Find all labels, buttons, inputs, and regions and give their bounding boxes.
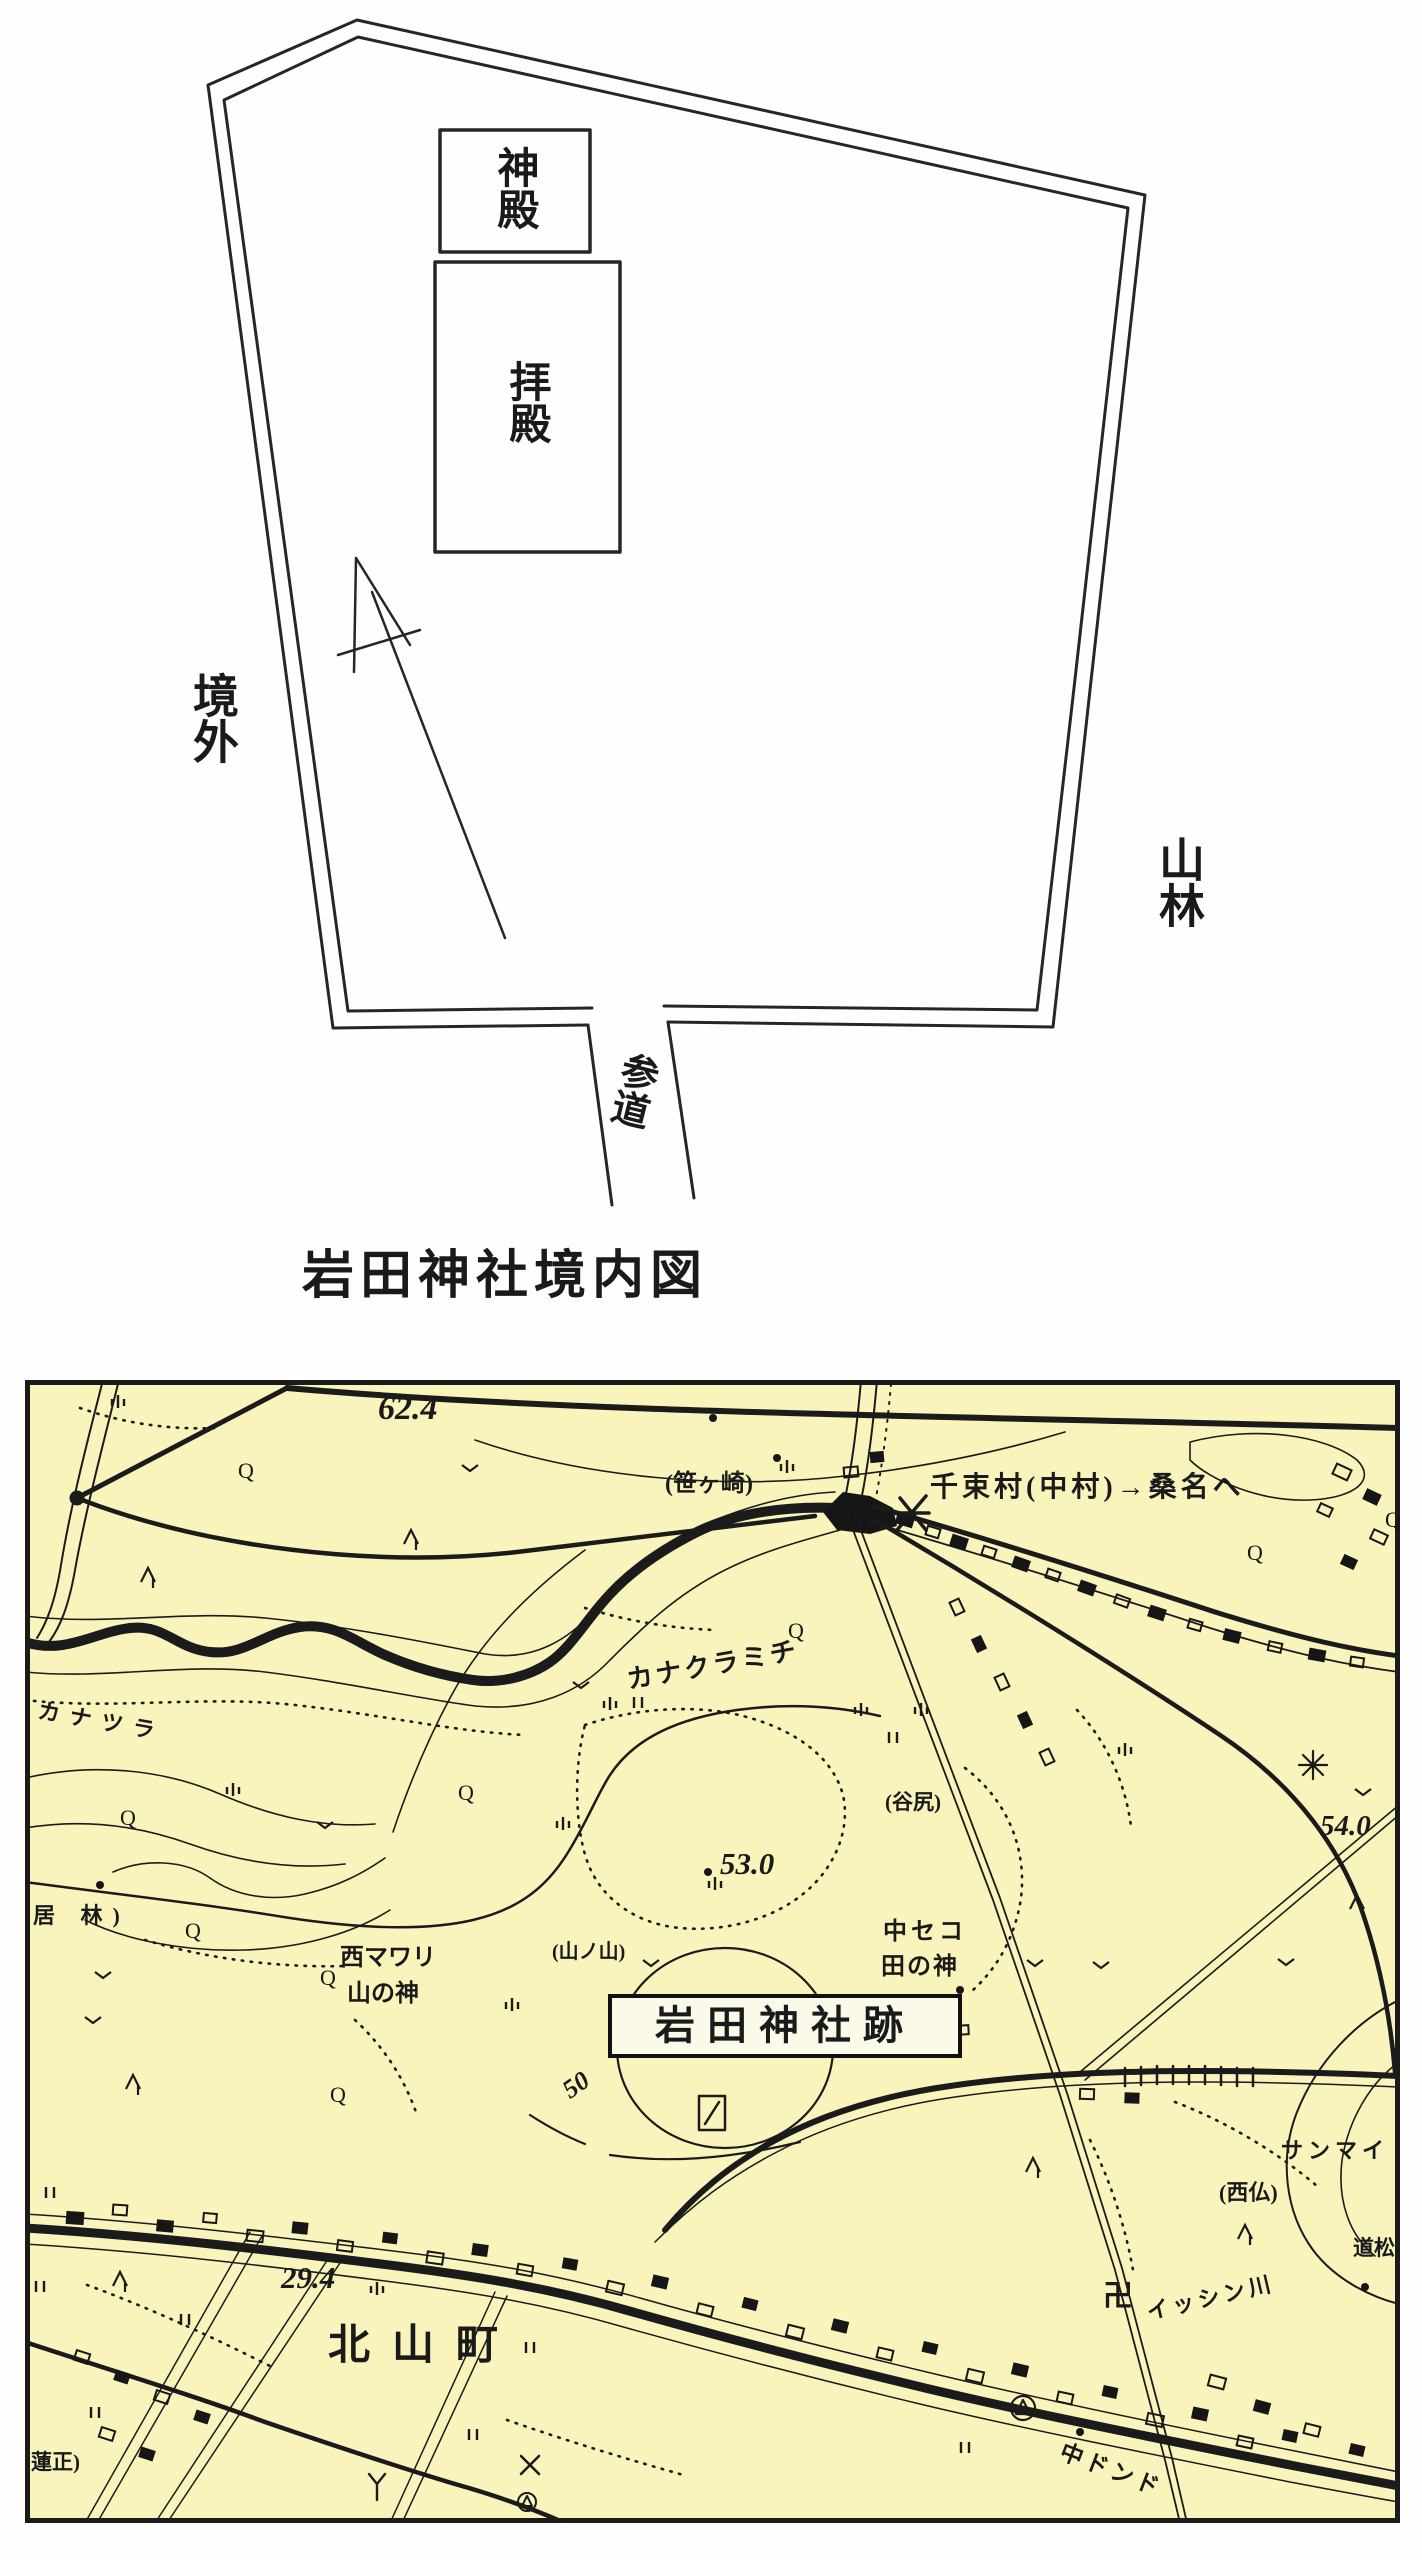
ibayashi-label: 居 林) xyxy=(33,1905,130,1927)
asterisk-symbol xyxy=(1299,1751,1327,1779)
sasagasaki-label: (笹ヶ崎) xyxy=(665,1472,753,1496)
topo-map-graphics: QQQQQQQQQ xyxy=(25,1380,1400,2523)
road-destination-note: 千束村(中村)→桑名へ xyxy=(930,1474,1245,1502)
diagram-caption: 岩田神社境内図 xyxy=(302,1250,708,1302)
shinden-label: 神殿 xyxy=(494,146,536,230)
scanned-page: 神殿 拝殿 境外 山林 参道 岩田神社境内図 xyxy=(0,0,1422,2560)
manji-temple-symbol: 卍 xyxy=(1103,2282,1133,2312)
orchard-symbol: Q xyxy=(185,1918,201,1943)
haiden-label: 拝殿 xyxy=(506,360,548,444)
yamanoyama-label: (山ノ山) xyxy=(552,1942,625,1962)
forest-label: 山林 xyxy=(1156,836,1202,928)
orchard-symbol: Q xyxy=(1385,1507,1400,1532)
nakaseko-label: 中セコ xyxy=(883,1920,967,1944)
orchard-symbol: Q xyxy=(238,1458,254,1483)
precinct-inner-boundary xyxy=(224,37,1128,1011)
outside-precinct-label: 境外 xyxy=(190,672,236,764)
spot-elevation-29-4: 29.4 xyxy=(281,2262,335,2293)
shrine-site-label: 岩田神社跡 xyxy=(610,2006,960,2046)
nishimawari-label: 西マワリ xyxy=(340,1946,436,1970)
orchard-symbol: Q xyxy=(1247,1540,1263,1565)
sanmai-label: サンマイ xyxy=(1281,2140,1389,2162)
ta-no-kami-label: 田の神 xyxy=(881,1955,959,1979)
nishibotoke-label: (西仏) xyxy=(1219,2182,1278,2204)
north-arrow xyxy=(338,558,505,938)
tanijiri-label: (谷尻) xyxy=(885,1792,941,1813)
orchard-symbol: Q xyxy=(458,1780,474,1805)
domatsu-label: 道松 xyxy=(1353,2238,1395,2259)
spot-elevation-62-4: 62.4 xyxy=(378,1392,438,1426)
yama-no-kami-label: 山の神 xyxy=(347,1982,419,2006)
orchard-symbol: Q xyxy=(320,1965,336,1990)
orchard-symbol: Q xyxy=(120,1805,136,1830)
rensho-label: 蓮正) xyxy=(31,2452,80,2473)
spot-elevation-53-0: 53.0 xyxy=(720,1848,774,1879)
precinct-outer-boundary xyxy=(208,20,1145,1028)
kitayama-cho-label: 北山町 xyxy=(328,2325,520,2367)
orchard-symbol: Q xyxy=(330,2082,346,2107)
spot-elevation-54-0: 54.0 xyxy=(1320,1812,1371,1841)
